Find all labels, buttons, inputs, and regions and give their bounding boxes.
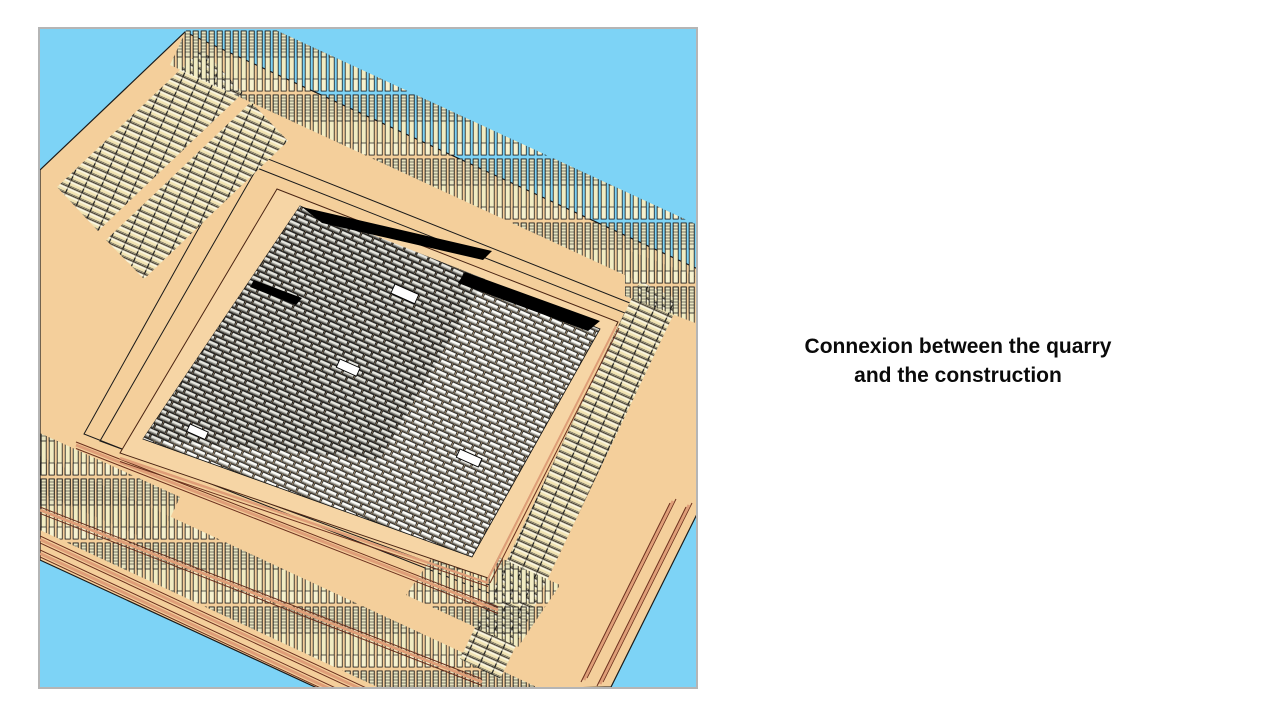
quarry-construction-3d-figure: [40, 29, 696, 687]
caption-line-2: and the construction: [780, 361, 1136, 390]
figure-caption: Connexion between the quarry and the con…: [780, 332, 1136, 390]
caption-line-1: Connexion between the quarry: [780, 332, 1136, 361]
quarry-figure-panel: [38, 27, 698, 689]
